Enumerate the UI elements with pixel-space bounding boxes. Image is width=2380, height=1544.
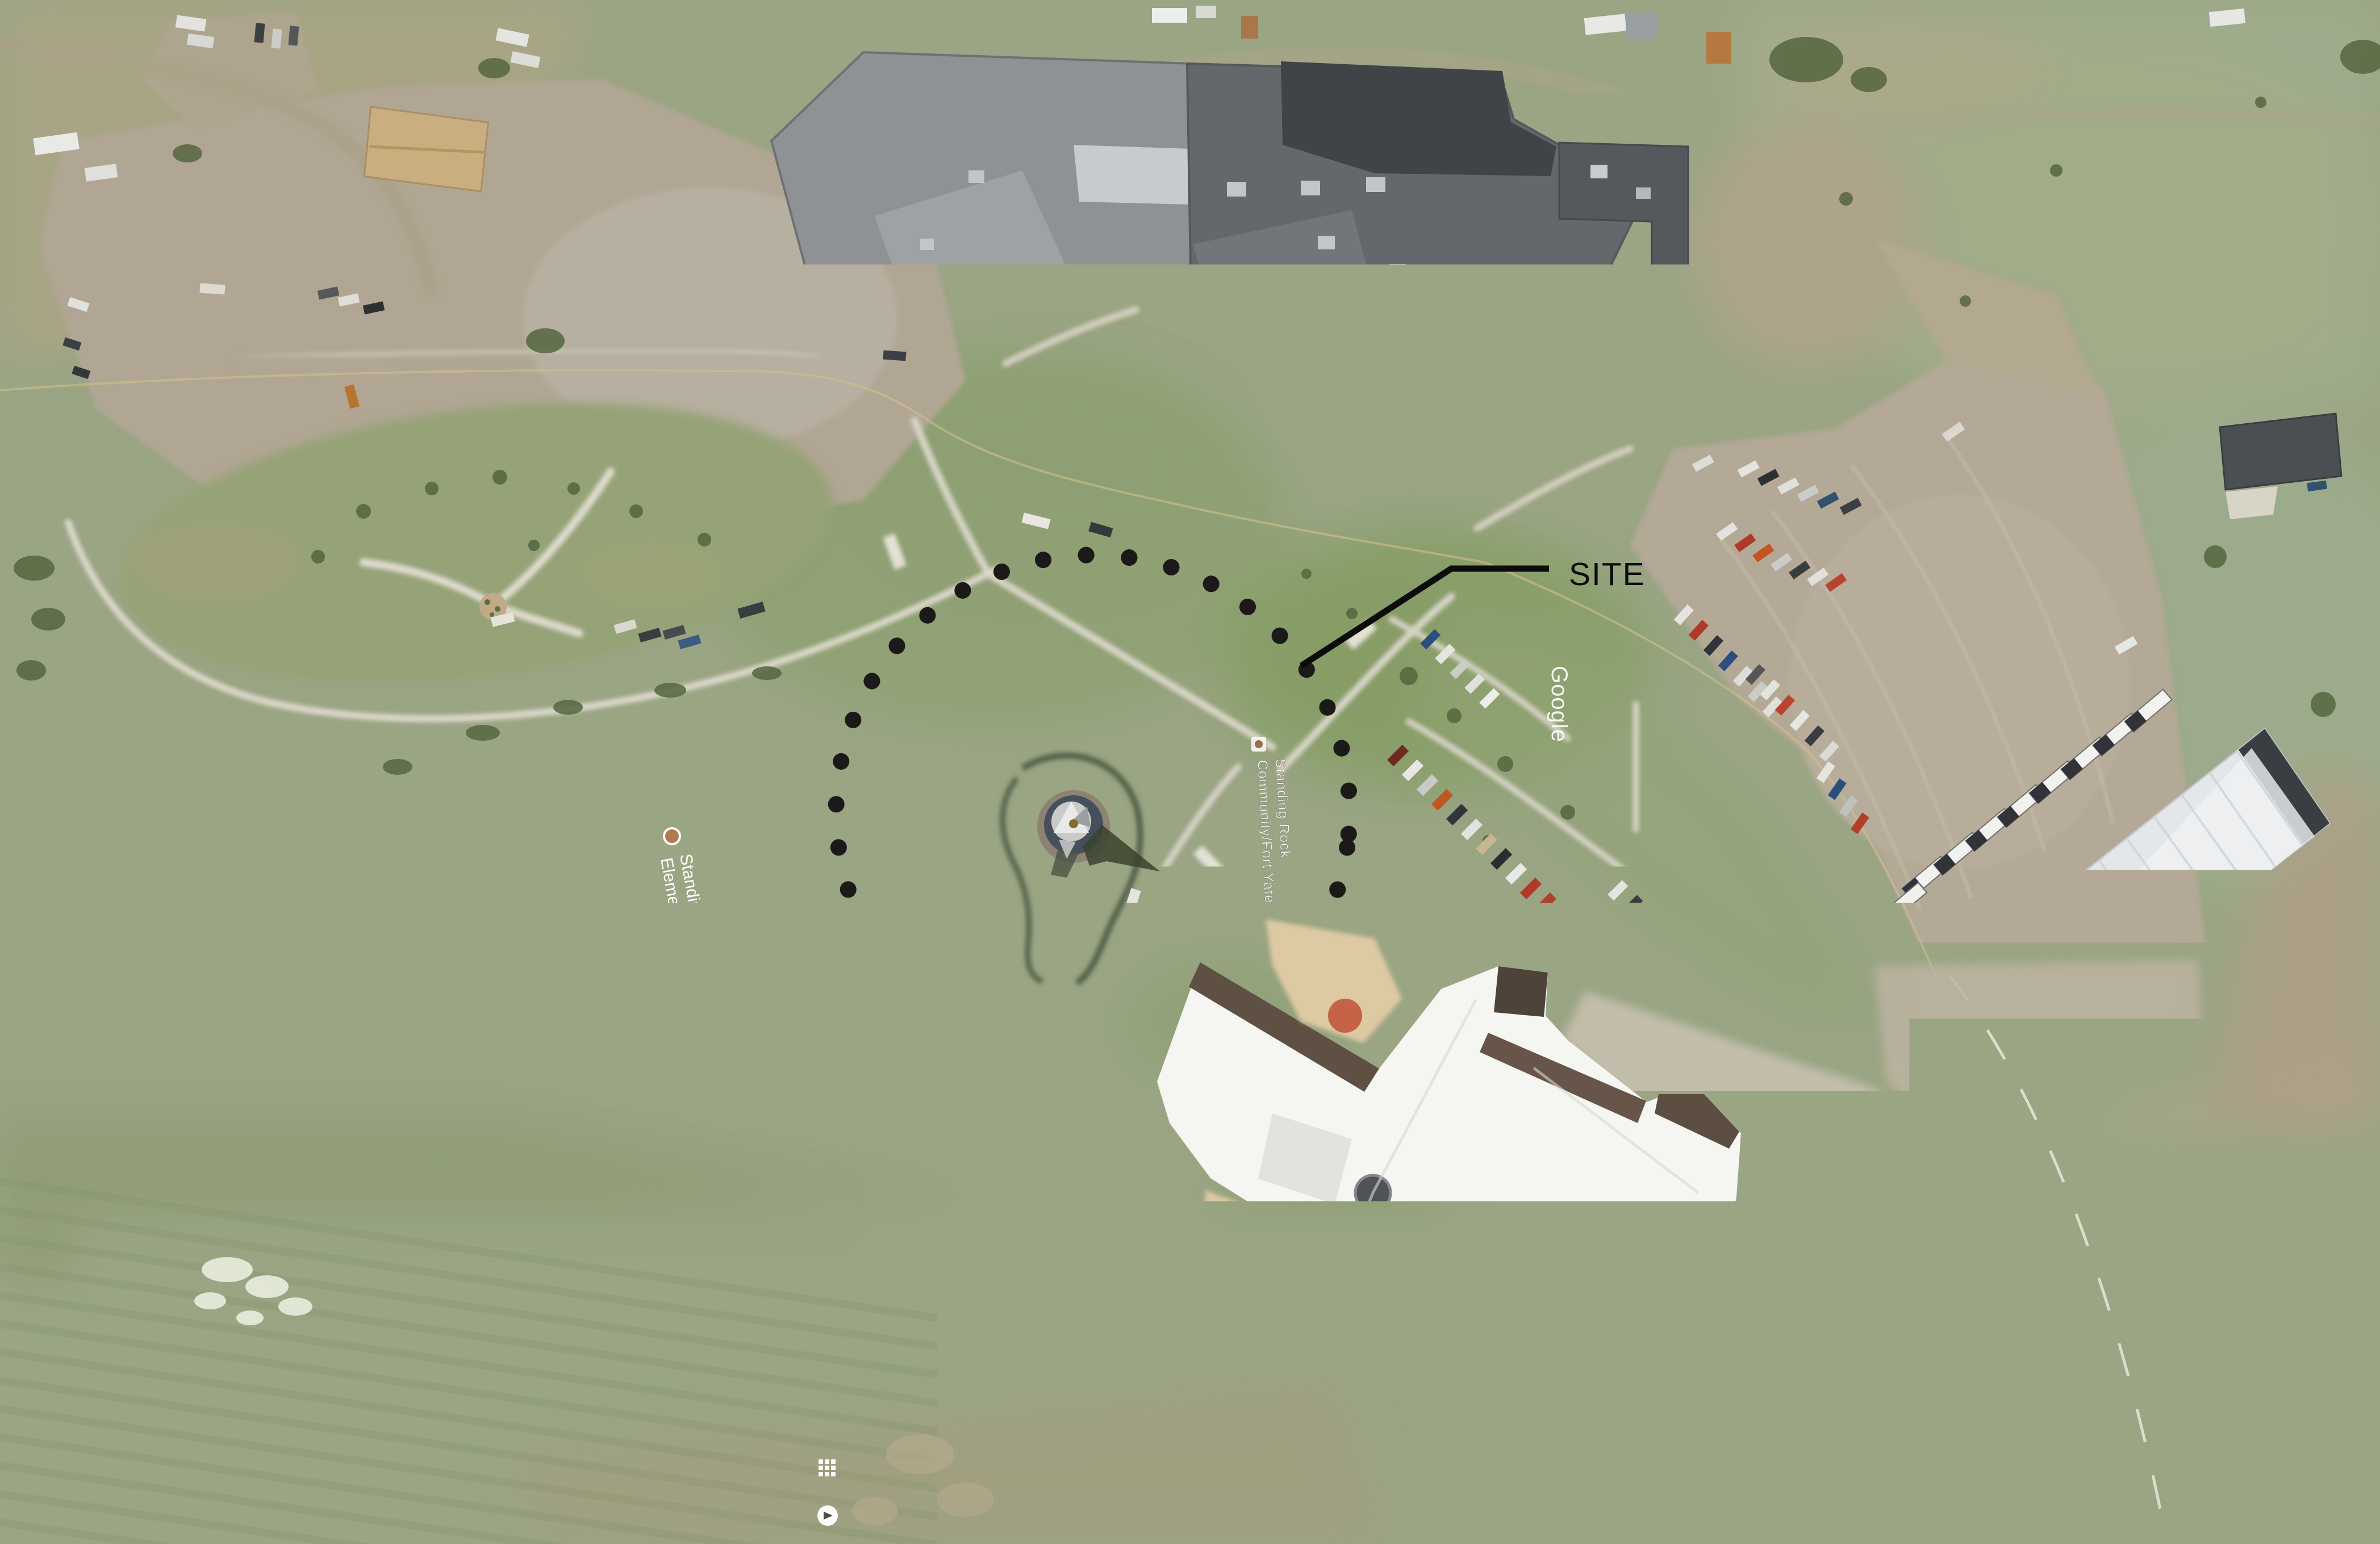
svg-text:SITE: SITE bbox=[1569, 556, 1646, 592]
svg-text:Google: Google bbox=[1547, 666, 1572, 742]
